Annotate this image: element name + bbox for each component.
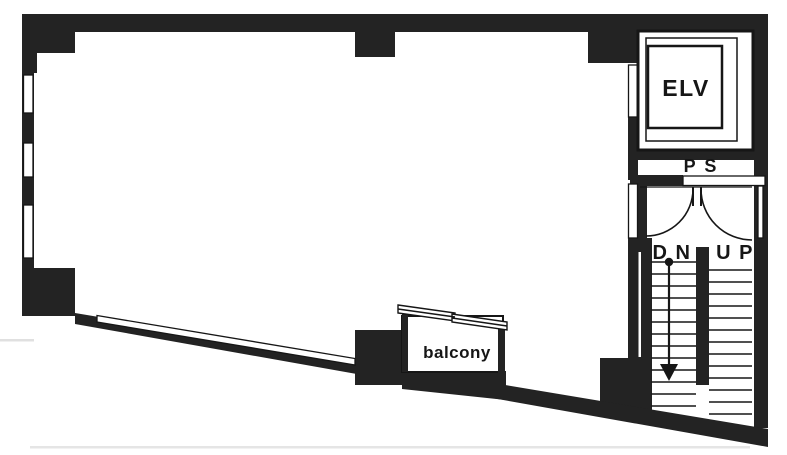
entry-doors: [640, 187, 752, 240]
door-swing-arc-right: [701, 189, 752, 240]
balcony-label: balcony: [423, 343, 491, 362]
stair-wall-gap-line: [639, 252, 642, 357]
slant-window-band: [97, 316, 355, 366]
balcony-left-edge: [402, 314, 408, 372]
floor-plan-drawing: ELV P S D N U P balcony: [0, 0, 787, 455]
left-window-3: [24, 205, 34, 258]
hall-opening: [629, 184, 638, 238]
stair-treads-up-flight: [709, 270, 752, 414]
top-pier-right: [588, 32, 637, 63]
bottom-left-corner-pier: [22, 260, 75, 316]
balcony-left-pier: [355, 330, 402, 385]
pipe-shaft-label: P S: [684, 156, 719, 176]
right-wall-slit: [758, 186, 763, 238]
top-wall: [22, 14, 768, 32]
core-window: [629, 65, 638, 117]
stair-up-label: U P: [716, 242, 754, 264]
top-pier-middle: [355, 32, 395, 57]
balcony-right-edge: [498, 325, 505, 380]
stair-center-rail: [696, 247, 709, 385]
left-window-1: [24, 75, 34, 113]
door-swing-arc-left: [646, 189, 693, 236]
elevator-label: ELV: [662, 75, 710, 101]
floor-plan-page: ELV P S D N U P balcony: [0, 0, 787, 455]
stair-down-label: D N: [653, 242, 692, 264]
arrow-head: [660, 364, 678, 381]
ps-shaft-bar: [683, 176, 765, 186]
scan-smudge-bottom: [30, 446, 750, 449]
left-window-2: [24, 143, 34, 177]
under-balcony-wall: [402, 371, 506, 400]
stair-treads-down-flight: [651, 262, 696, 406]
scan-smudge-left: [0, 339, 34, 342]
stair-direction-arrow: [660, 258, 678, 381]
